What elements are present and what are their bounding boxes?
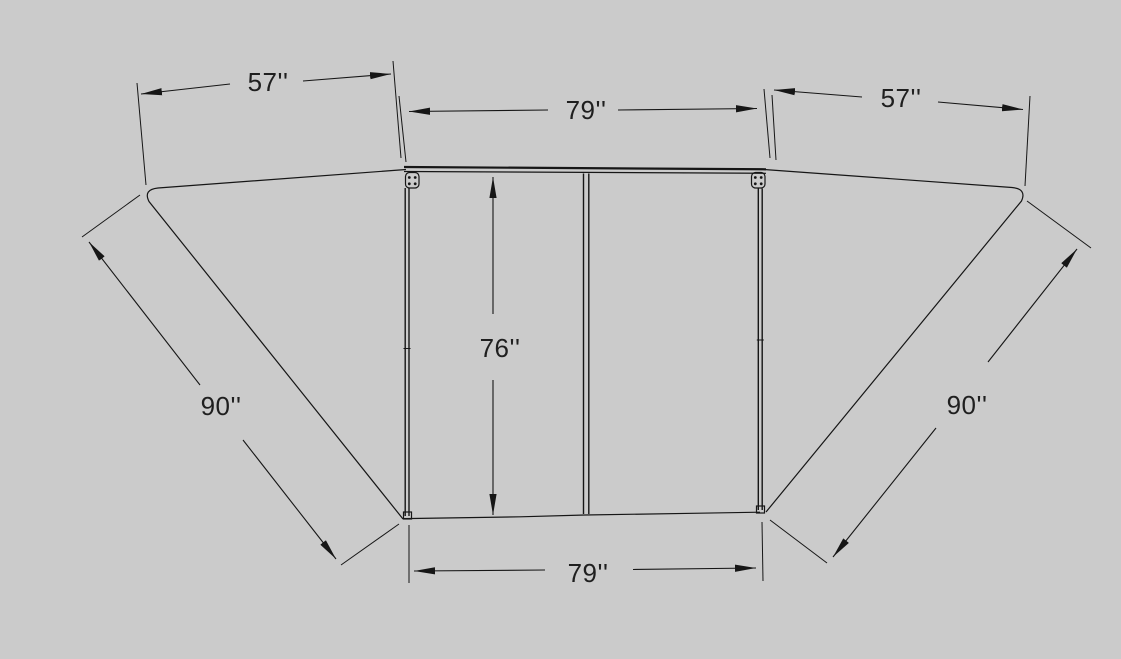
dimension-label: 57'' — [248, 67, 289, 97]
dimension-center-vertical: 76'' — [480, 177, 521, 515]
dimension-line — [988, 249, 1077, 362]
dimension-label: 76'' — [480, 333, 521, 363]
dimension-label: 90'' — [947, 390, 988, 420]
corner-bracket-left — [406, 173, 420, 189]
bracket-bolt-dots — [408, 176, 417, 185]
dimension-top-center: 79'' — [399, 89, 770, 162]
dimension-line — [938, 102, 1023, 110]
dimension-line — [774, 90, 862, 97]
wings — [147, 170, 1023, 520]
dimension-line — [243, 440, 336, 559]
dimension-top-right: 57'' — [772, 83, 1030, 186]
bracket-bolt-dots — [754, 176, 763, 185]
extension-line — [762, 522, 763, 581]
dimension-line — [141, 84, 230, 94]
top-rail-outer-edge — [404, 167, 766, 169]
drawing-viewport: 57'' 79'' 57'' 76'' — [0, 0, 1121, 659]
left-wing-outline — [147, 170, 406, 520]
corner-bracket-right — [752, 173, 766, 189]
extension-line — [764, 89, 770, 158]
dimension-top-left: 57'' — [137, 61, 401, 185]
right-wing-outline — [764, 170, 1023, 513]
dimension-label: 79'' — [568, 558, 609, 588]
dimension-line — [833, 428, 936, 557]
extension-line — [393, 61, 401, 158]
extension-line — [341, 524, 399, 565]
top-rail-inner-edge — [404, 172, 766, 174]
dimension-line — [303, 74, 391, 81]
bracket-plate — [406, 173, 420, 189]
dimension-label: 57'' — [881, 83, 922, 113]
dimension-left-diagonal: 90'' — [82, 195, 399, 565]
cad-drawing: 57'' 79'' 57'' 76'' — [0, 0, 1121, 659]
dimension-label: 90'' — [201, 391, 242, 421]
dimension-line — [89, 242, 200, 385]
dimension-label: 79'' — [566, 95, 607, 125]
extension-line — [1025, 96, 1030, 186]
dimension-line — [618, 109, 757, 111]
frame-panel — [404, 167, 767, 519]
extension-line — [1027, 201, 1091, 248]
bracket-plate — [752, 173, 766, 189]
dimensions: 57'' 79'' 57'' 76'' — [82, 61, 1091, 588]
extension-line — [137, 83, 146, 185]
extension-line — [772, 95, 776, 160]
dimension-line — [409, 110, 548, 112]
extension-line — [82, 195, 140, 237]
dimension-right-diagonal: 90'' — [770, 201, 1091, 563]
dimension-bottom: 79'' — [409, 522, 763, 588]
bottom-edge — [404, 512, 760, 518]
dimension-line — [414, 570, 545, 571]
dimension-line — [633, 568, 756, 570]
extension-line — [770, 520, 827, 563]
